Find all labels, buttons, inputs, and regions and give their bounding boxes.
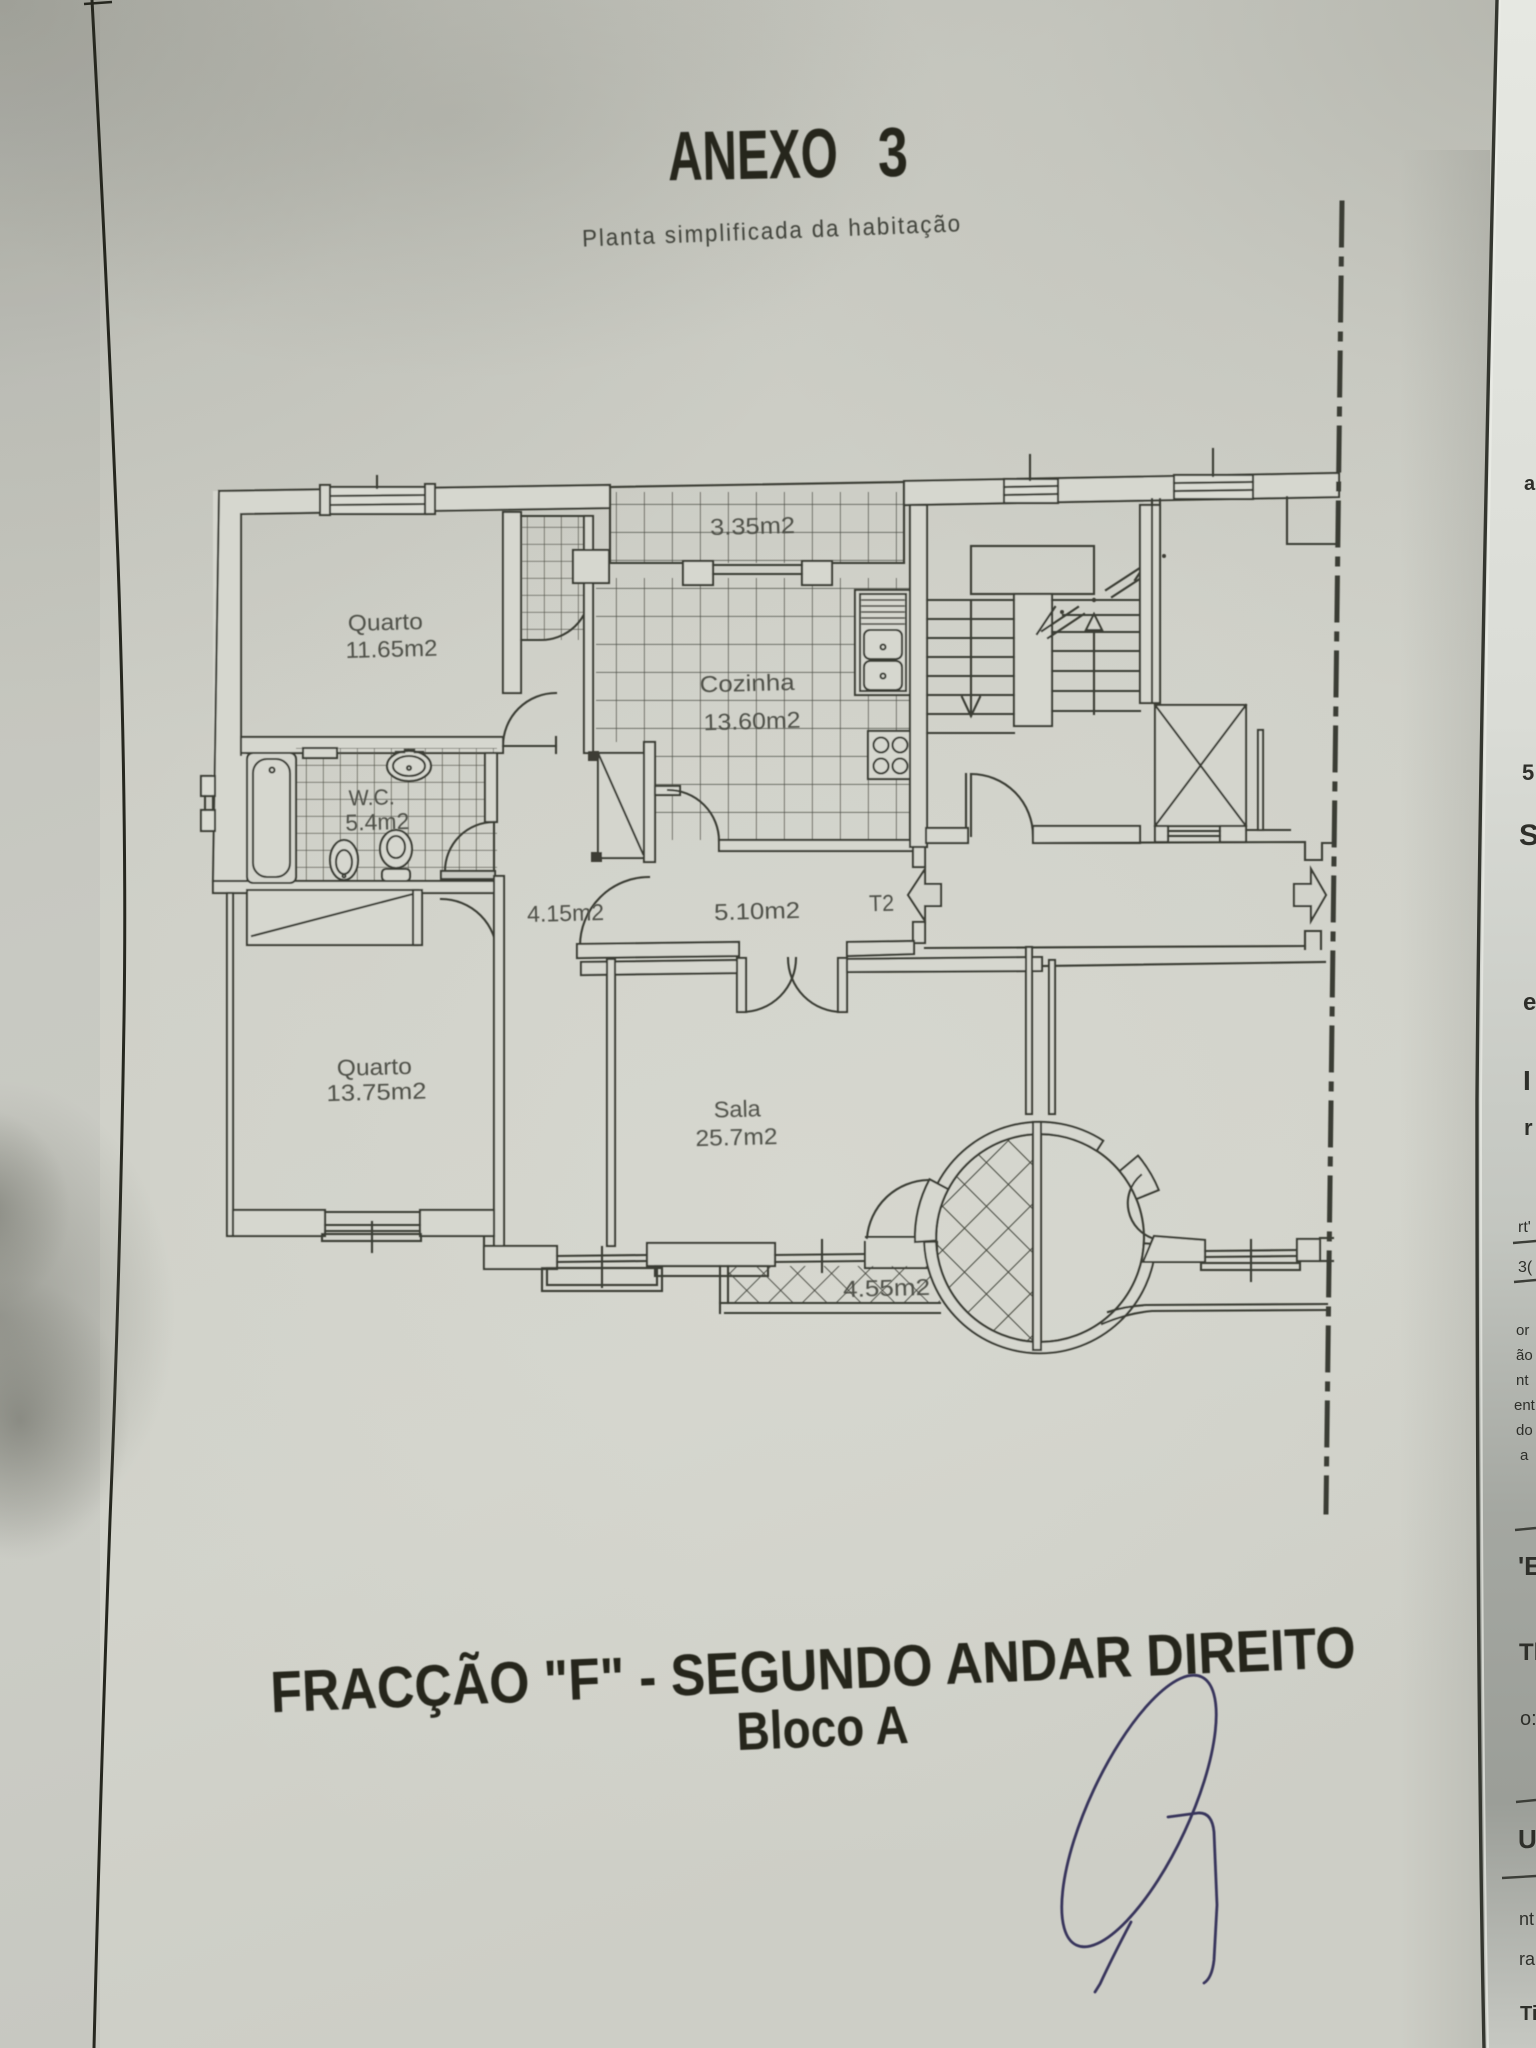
svg-text:U: U [1518,1824,1536,1854]
svg-text:Cozinha: Cozinha [699,669,795,697]
svg-text:ra: ra [1519,1949,1536,1969]
svg-text:4.55m2: 4.55m2 [843,1274,931,1302]
svg-text:e: e [1523,989,1536,1016]
svg-text:nt: nt [1519,1909,1534,1929]
svg-text:3: 3 [877,113,909,192]
svg-text:a: a [1524,473,1536,495]
svg-text:a: a [1520,1447,1529,1464]
svg-text:Ti: Ti [1520,2003,1536,2025]
svg-text:Tl: Tl [1519,1639,1536,1666]
svg-text:r: r [1524,1115,1533,1140]
svg-text:13.75m2: 13.75m2 [326,1078,427,1107]
svg-text:o:: o: [1520,1708,1536,1730]
svg-text:ANEXO: ANEXO [667,114,839,196]
svg-text:T2: T2 [869,890,895,917]
svg-text:S: S [1519,819,1536,852]
svg-text:W.C.: W.C. [348,784,395,810]
svg-text:nt: nt [1516,1372,1529,1389]
svg-text:5.10m2: 5.10m2 [714,897,801,925]
svg-text:Quarto: Quarto [347,608,423,636]
svg-text:11.65m2: 11.65m2 [345,635,438,663]
svg-text:Quarto: Quarto [336,1053,412,1081]
svg-text:Bloco A: Bloco A [735,1695,909,1762]
svg-text:ent: ent [1514,1397,1536,1414]
svg-text:5.4m2: 5.4m2 [345,808,410,836]
svg-text:'E: 'E [1518,1551,1536,1581]
svg-text:13.60m2: 13.60m2 [703,707,801,736]
svg-text:rt': rt' [1518,1219,1531,1236]
svg-text:25.7m2: 25.7m2 [695,1123,778,1151]
svg-text:3(: 3( [1518,1259,1533,1276]
svg-text:4.15m2: 4.15m2 [527,899,605,927]
svg-text:Sala: Sala [713,1095,761,1122]
svg-text:I: I [1523,1065,1531,1096]
svg-text:do: do [1516,1422,1533,1439]
svg-text:ão: ão [1516,1347,1533,1364]
svg-text:5: 5 [1522,760,1534,785]
svg-text:3.35m2: 3.35m2 [710,512,796,540]
svg-text:or: or [1516,1322,1529,1339]
